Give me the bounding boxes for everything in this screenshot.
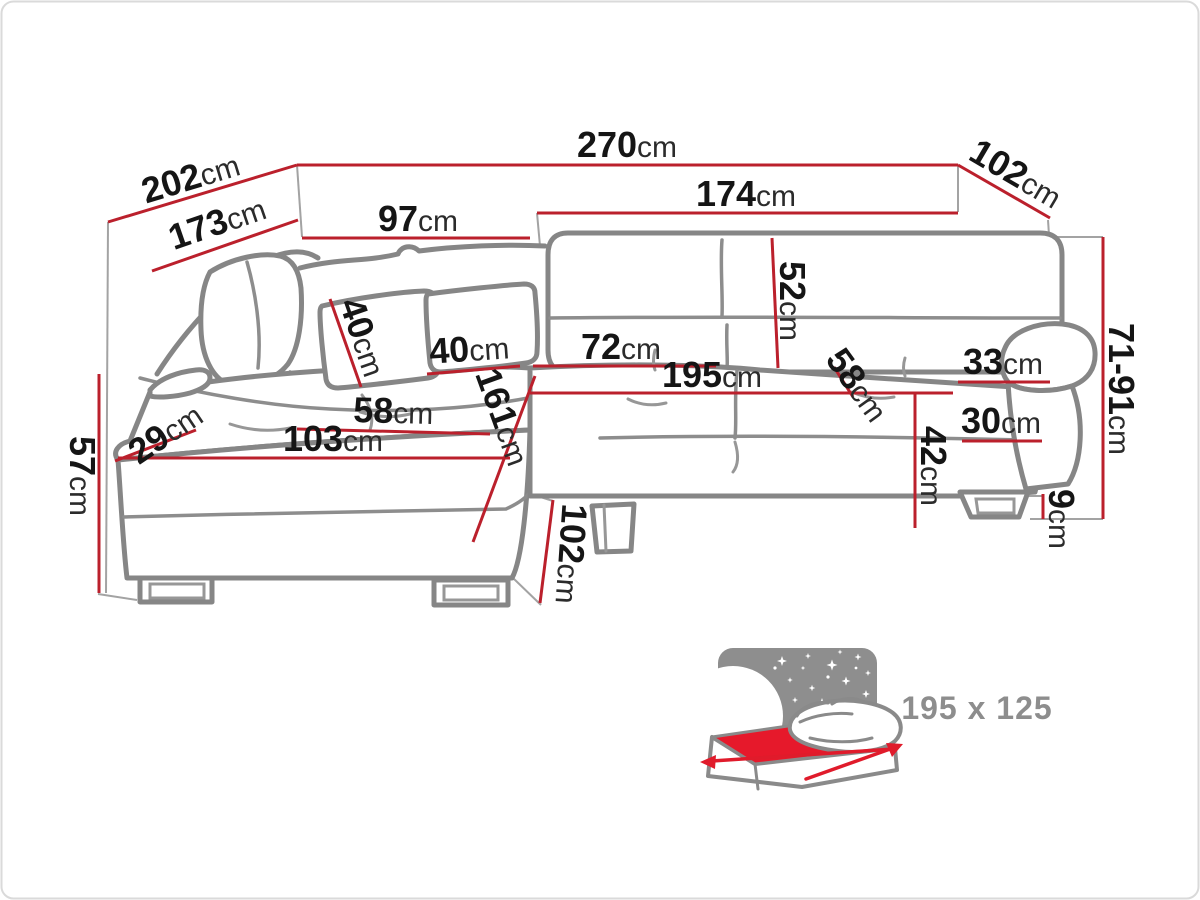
dim-label-103cm: 103cm <box>283 418 383 459</box>
sofa-drawing <box>116 233 1095 605</box>
dim-label-71-91cm: 71-91cm <box>1101 323 1142 455</box>
sofa-dimension-diagram: 270cm 202cm 102cm 173cm 97cm 174cm 52cm … <box>0 0 1200 900</box>
dim-label-52cm: 52cm <box>772 261 813 341</box>
foot-mid <box>592 504 634 552</box>
foot-mid-inner <box>604 505 606 551</box>
backrest-seam-upper <box>721 240 722 316</box>
dim-label-33cm: 33cm <box>963 341 1043 382</box>
dim-label-270cm: 270cm <box>577 124 677 165</box>
sleeping-function-icon: 195 x 125 <box>683 648 1053 789</box>
dim-label-195cm: 195cm <box>662 354 762 395</box>
dim-label-202cm: 202cm <box>136 143 244 211</box>
back-gap-tick-2 <box>904 358 906 376</box>
dim-label-97cm: 97cm <box>378 198 458 239</box>
dim-label-9cm: 9cm <box>1041 489 1082 549</box>
diagram-canvas: 270cm 202cm 102cm 173cm 97cm 174cm 52cm … <box>0 0 1200 900</box>
dim-label-30cm: 30cm <box>961 400 1041 441</box>
dim-label-174cm: 174cm <box>696 173 796 214</box>
dim-label-42cm: 42cm <box>913 426 954 506</box>
dim-label-72cm: 72cm <box>581 326 661 367</box>
dim-label-102cm-bottom: 102cm <box>548 503 596 606</box>
dim-label-57cm: 57cm <box>62 436 103 516</box>
corner-back-top-edge <box>300 245 545 268</box>
sleeping-area-size: 195 x 125 <box>901 690 1052 726</box>
dim-label-102cm-top: 102cm <box>963 130 1070 216</box>
